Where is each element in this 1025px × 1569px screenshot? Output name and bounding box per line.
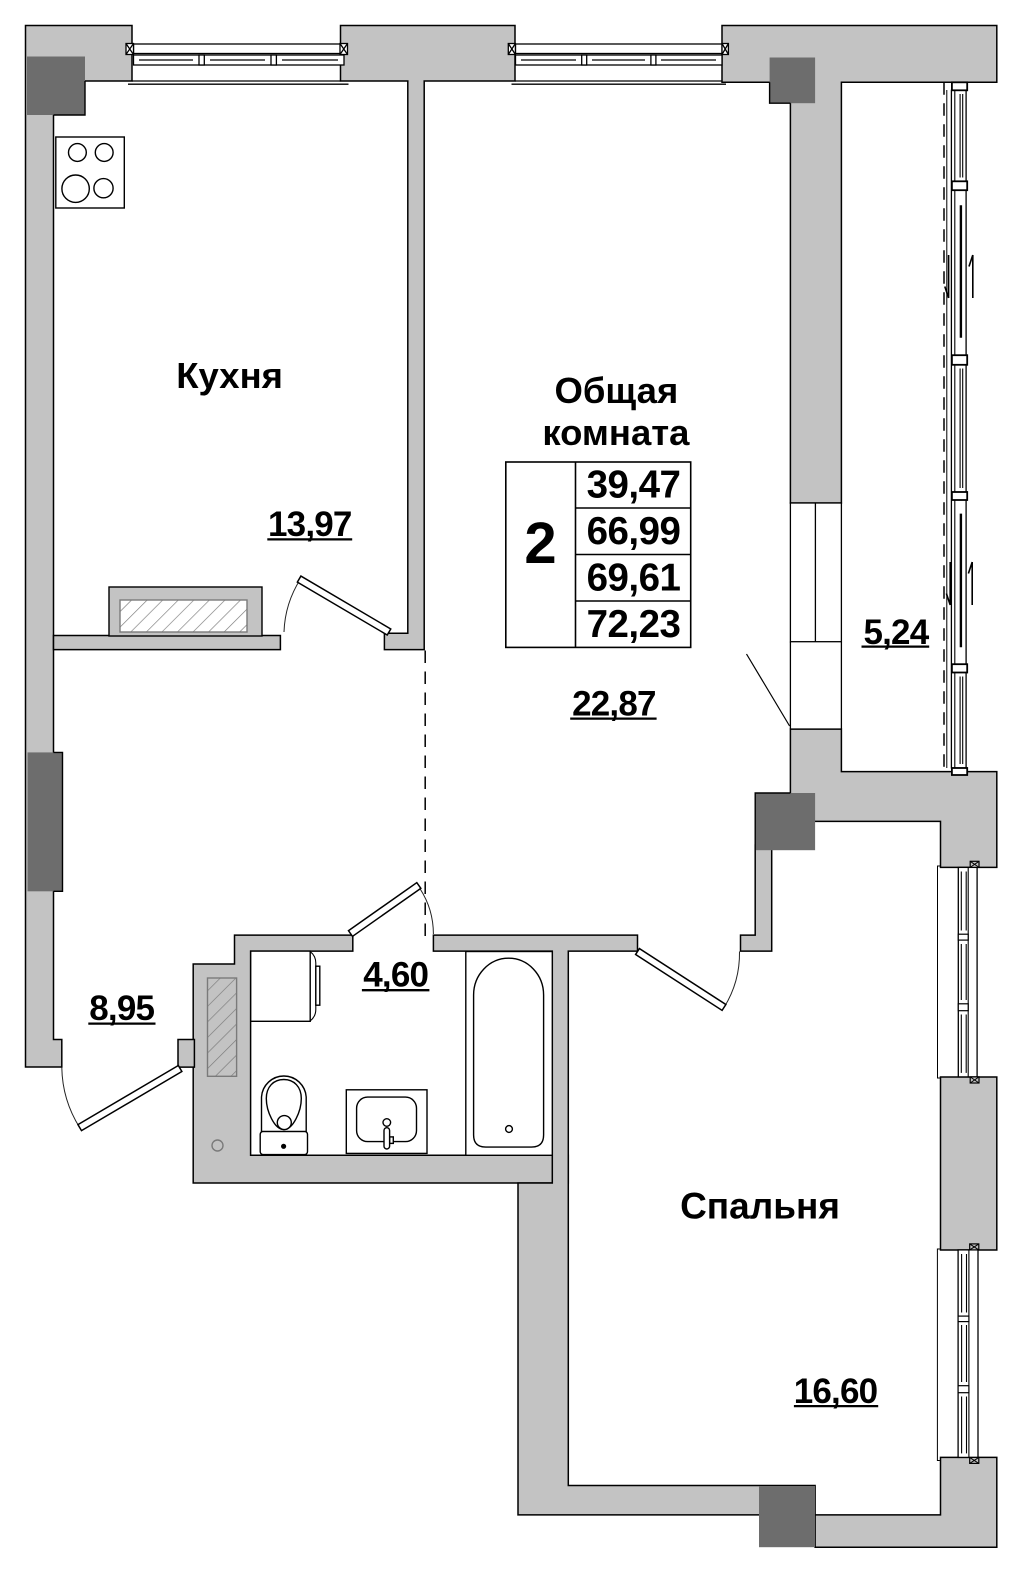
svg-text:39,47: 39,47 — [587, 464, 681, 507]
svg-text:Общая: Общая — [555, 370, 679, 411]
svg-text:8,95: 8,95 — [89, 989, 154, 1028]
svg-text:4,60: 4,60 — [363, 955, 428, 994]
svg-text:комната: комната — [542, 412, 690, 453]
svg-text:Спальня: Спальня — [680, 1186, 840, 1227]
svg-text:2: 2 — [524, 511, 556, 576]
svg-text:72,23: 72,23 — [587, 603, 681, 646]
svg-text:69,61: 69,61 — [587, 557, 681, 600]
svg-text:Кухня: Кухня — [176, 355, 283, 396]
svg-text:66,99: 66,99 — [587, 510, 681, 553]
